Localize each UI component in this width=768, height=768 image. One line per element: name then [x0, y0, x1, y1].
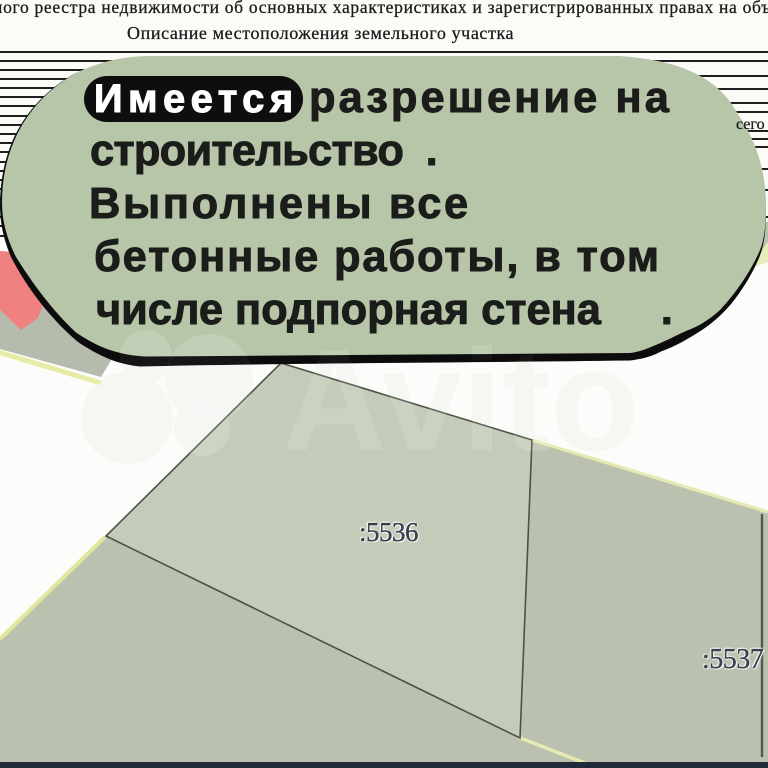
svg-text:Avito: Avito [282, 319, 639, 481]
